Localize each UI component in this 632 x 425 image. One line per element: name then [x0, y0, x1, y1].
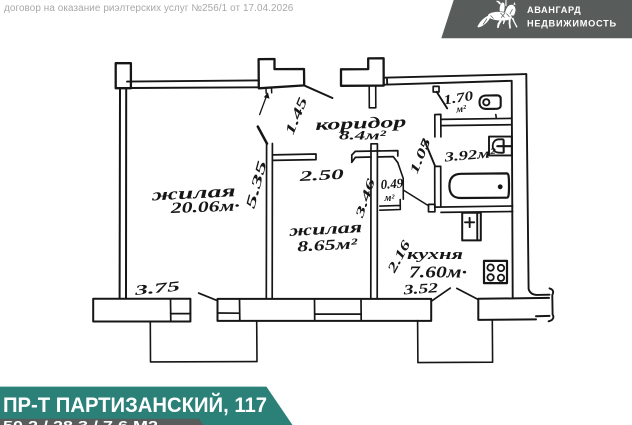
svg-text:3.46: 3.46 — [352, 177, 378, 221]
svg-text:7.60м·: 7.60м· — [409, 263, 467, 282]
svg-text:3.75: 3.75 — [133, 279, 181, 299]
svg-text:8.4м²: 8.4м² — [339, 128, 388, 143]
svg-text:0.49: 0.49 — [380, 175, 404, 192]
svg-text:3.52: 3.52 — [402, 281, 439, 298]
svg-text:ПР-Т ПАРТИЗАНСКИЙ, 117: ПР-Т ПАРТИЗАНСКИЙ, 117 — [3, 392, 267, 417]
svg-text:20.06м·: 20.06м· — [169, 198, 240, 217]
svg-text:3.92м²: 3.92м² — [443, 145, 498, 165]
svg-text:2.50: 2.50 — [298, 167, 345, 185]
svg-text:кухня: кухня — [407, 247, 463, 263]
svg-text:м²: м² — [384, 193, 396, 204]
svg-text:1.45: 1.45 — [282, 95, 311, 137]
svg-text:50.2 / 28.3 / 7.6 М2: 50.2 / 28.3 / 7.6 М2 — [3, 418, 158, 425]
svg-text:м²: м² — [455, 103, 468, 115]
svg-text:8.65м²: 8.65м² — [297, 236, 358, 255]
svg-text:1.05: 1.05 — [407, 136, 434, 176]
